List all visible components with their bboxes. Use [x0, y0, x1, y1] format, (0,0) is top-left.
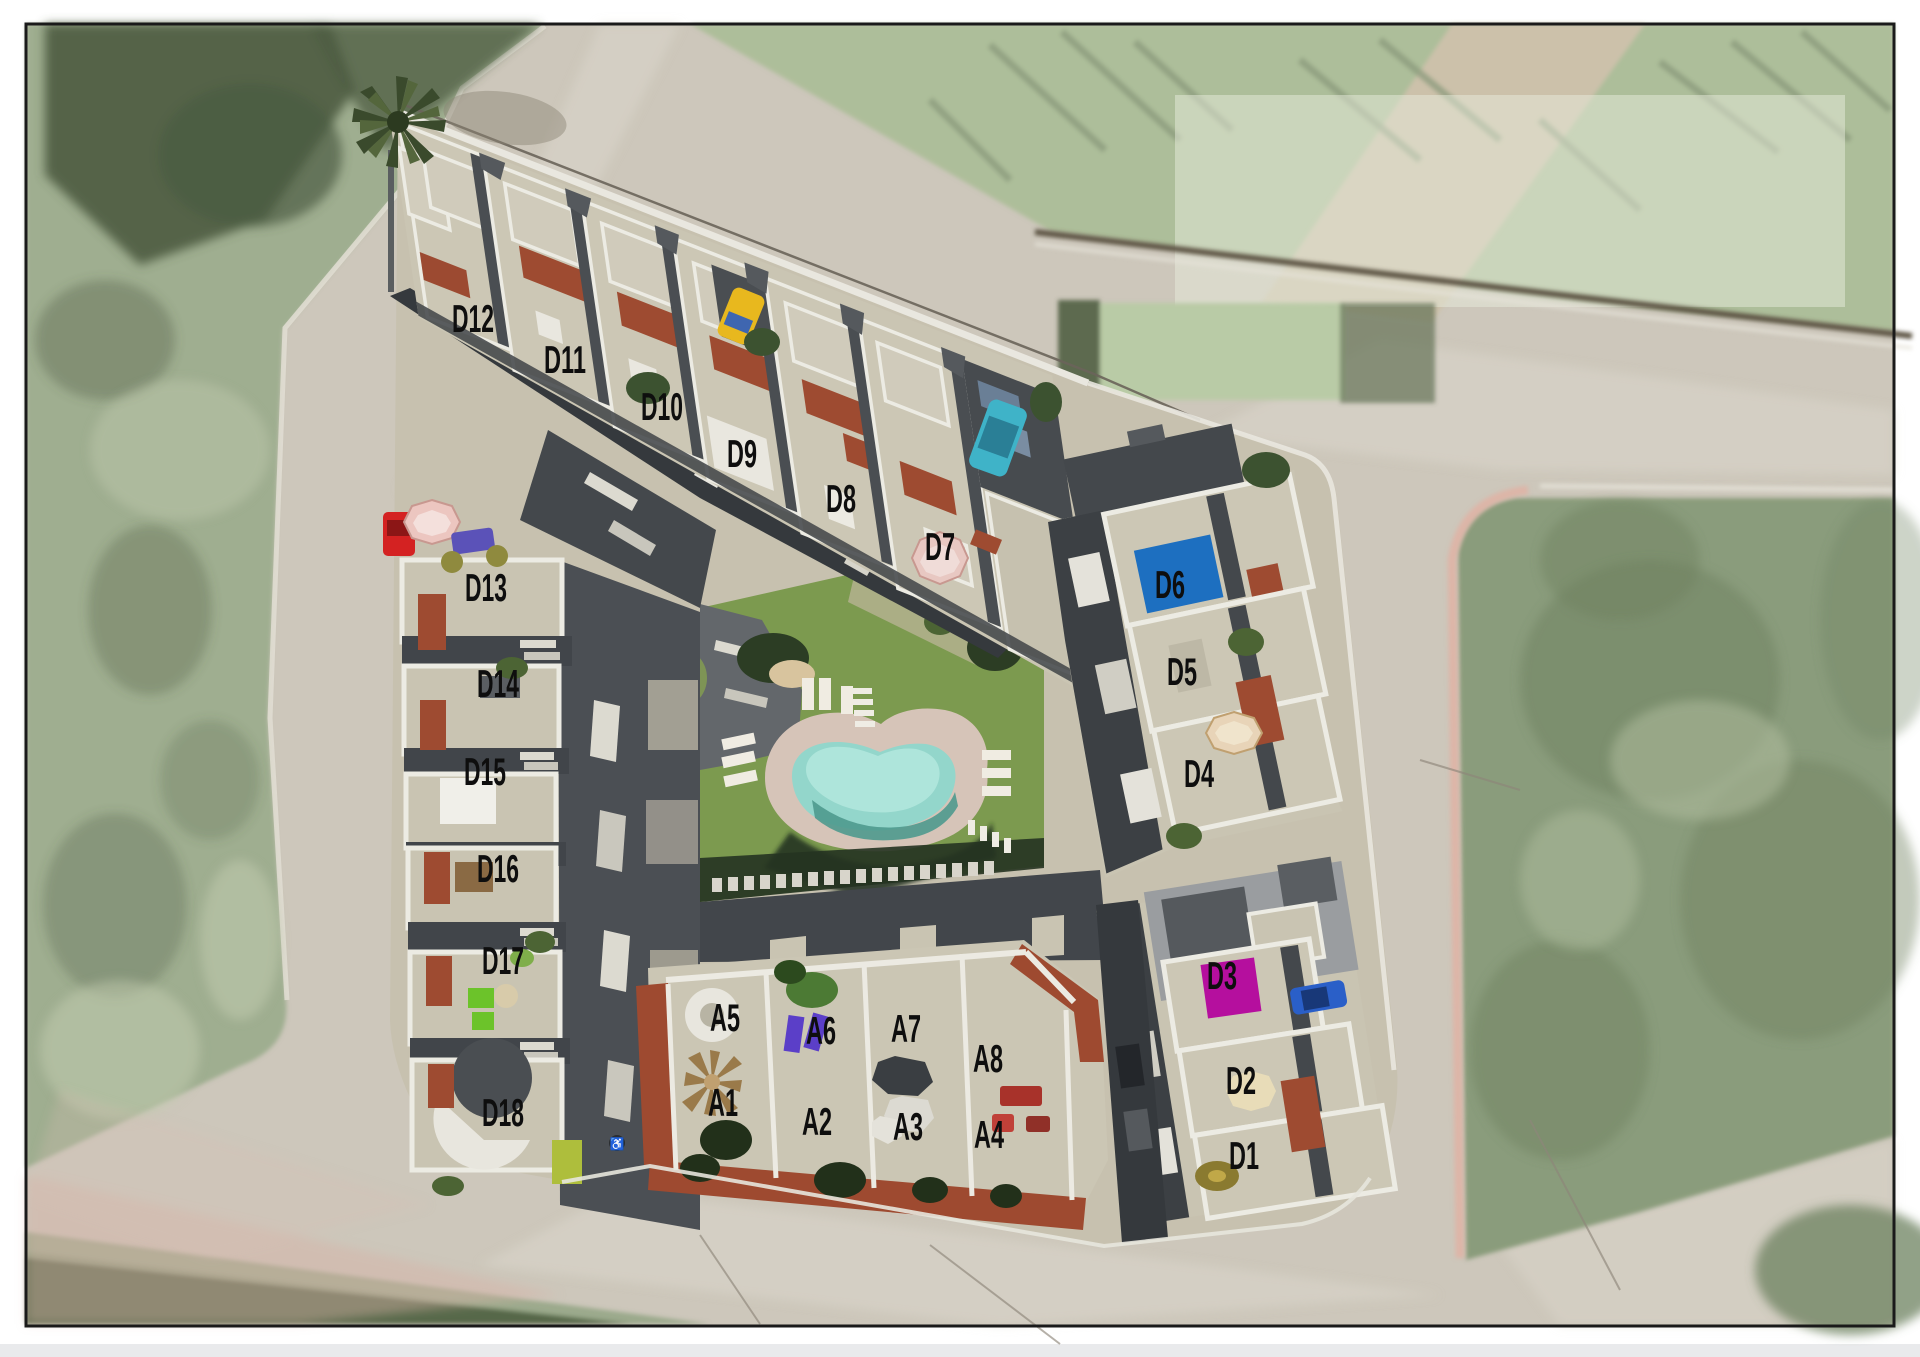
svg-text:A3: A3 — [893, 1106, 923, 1149]
svg-text:A7: A7 — [891, 1008, 921, 1051]
svg-text:D12: D12 — [452, 298, 494, 341]
svg-text:D10: D10 — [641, 386, 683, 429]
svg-text:A5: A5 — [710, 997, 740, 1040]
svg-text:D5: D5 — [1167, 651, 1197, 694]
svg-text:D15: D15 — [464, 751, 506, 794]
svg-text:D17: D17 — [482, 940, 524, 983]
svg-text:A6: A6 — [806, 1010, 836, 1053]
svg-text:D4: D4 — [1184, 753, 1214, 796]
svg-text:D6: D6 — [1155, 564, 1185, 607]
svg-text:D3: D3 — [1207, 955, 1237, 998]
svg-text:D13: D13 — [465, 567, 507, 610]
svg-text:♿: ♿ — [610, 1137, 625, 1151]
svg-text:D7: D7 — [925, 526, 955, 569]
svg-text:D9: D9 — [727, 433, 757, 476]
svg-text:A8: A8 — [973, 1038, 1003, 1081]
svg-text:D14: D14 — [477, 663, 519, 706]
svg-text:D18: D18 — [482, 1092, 524, 1135]
svg-text:D11: D11 — [544, 339, 586, 382]
svg-text:D8: D8 — [826, 478, 856, 521]
svg-text:D1: D1 — [1229, 1135, 1259, 1178]
svg-text:D2: D2 — [1226, 1060, 1256, 1103]
svg-text:A2: A2 — [802, 1101, 832, 1144]
svg-text:A4: A4 — [974, 1114, 1004, 1157]
svg-text:D16: D16 — [477, 848, 519, 891]
svg-text:A1: A1 — [708, 1082, 738, 1125]
